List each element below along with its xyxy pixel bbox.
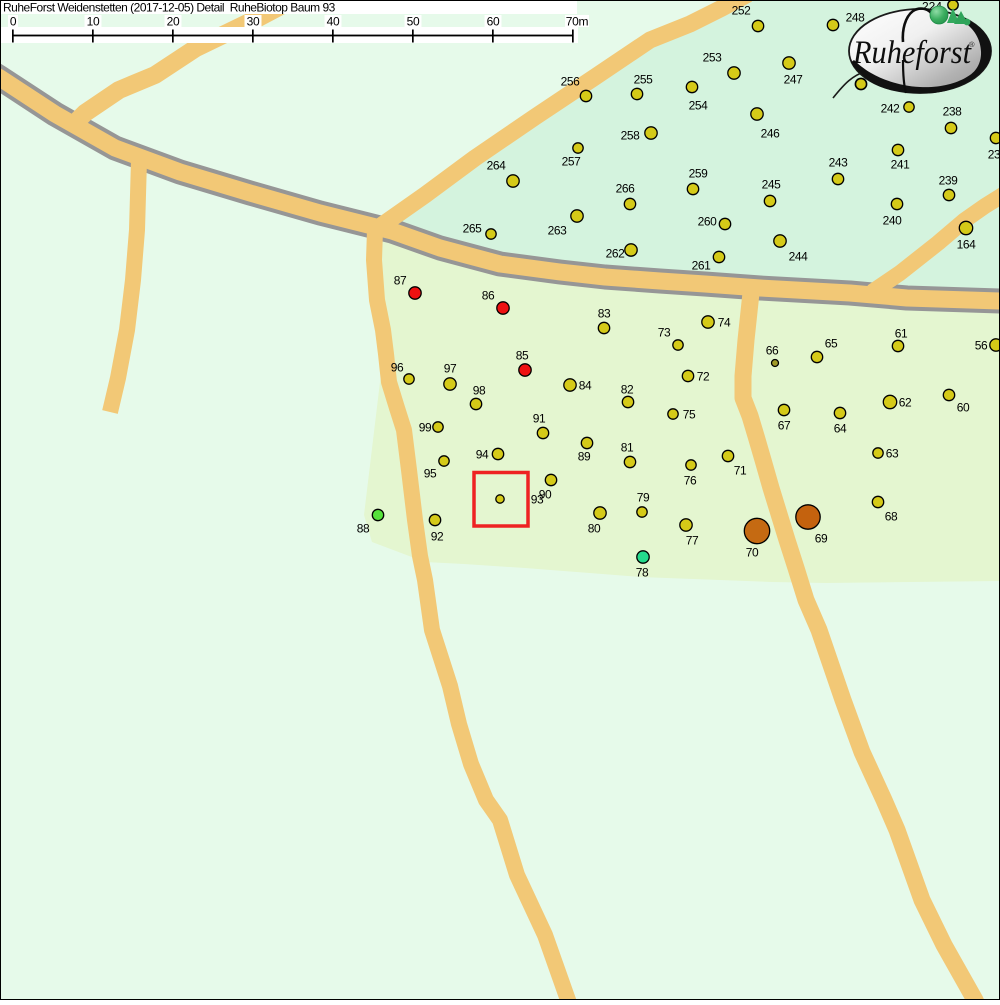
svg-text:70m: 70m [566,15,589,29]
svg-text:254: 254 [689,98,709,112]
svg-text:68: 68 [885,509,898,523]
svg-text:264: 264 [487,158,507,172]
svg-text:84: 84 [579,378,592,392]
svg-text:23: 23 [988,147,1000,161]
svg-text:61: 61 [895,326,908,340]
svg-text:265: 265 [463,221,483,235]
svg-text:72: 72 [697,369,710,383]
svg-text:50: 50 [407,15,420,29]
svg-text:252: 252 [732,3,752,17]
svg-text:78: 78 [636,565,649,579]
svg-text:69: 69 [815,531,828,545]
svg-text:87: 87 [394,273,407,287]
svg-text:81: 81 [621,440,634,454]
svg-text:91: 91 [533,411,546,425]
svg-text:256: 256 [561,74,581,88]
svg-text:80: 80 [588,521,601,535]
svg-text:RuheForst Weidenstetten (2017-: RuheForst Weidenstetten (2017-12-05) Det… [3,1,336,15]
svg-text:257: 257 [562,154,582,168]
svg-text:63: 63 [886,446,899,460]
svg-text:20: 20 [167,15,180,29]
svg-text:92: 92 [431,529,444,543]
svg-text:Ruheforst: Ruheforst [852,35,972,71]
svg-text:98: 98 [473,383,486,397]
svg-text:99: 99 [419,420,432,434]
svg-text:247: 247 [784,72,804,86]
svg-text:255: 255 [634,72,654,86]
svg-text:246: 246 [761,126,781,140]
svg-text:253: 253 [703,50,723,64]
svg-text:62: 62 [899,395,912,409]
svg-text:260: 260 [698,214,718,228]
svg-text:10: 10 [87,15,100,29]
svg-text:60: 60 [487,15,500,29]
svg-text:240: 240 [883,213,903,227]
svg-text:88: 88 [357,521,370,535]
svg-text:77: 77 [686,533,699,547]
svg-text:242: 242 [881,101,901,115]
svg-text:85: 85 [516,348,529,362]
svg-text:262: 262 [606,246,626,260]
svg-text:239: 239 [939,173,959,187]
svg-text:40: 40 [327,15,340,29]
svg-text:75: 75 [683,407,696,421]
svg-text:245: 245 [762,177,782,191]
svg-text:60: 60 [957,400,970,414]
svg-text:65: 65 [825,336,838,350]
svg-text:89: 89 [578,449,591,463]
svg-text:76: 76 [684,473,697,487]
svg-text:93: 93 [531,492,544,506]
svg-text:86: 86 [482,288,495,302]
svg-text:263: 263 [548,223,568,237]
svg-text:67: 67 [778,418,791,432]
svg-text:248: 248 [846,10,866,24]
svg-text:0: 0 [10,15,17,29]
svg-text:243: 243 [829,155,849,169]
svg-text:238: 238 [943,104,963,118]
svg-text:30: 30 [247,15,260,29]
svg-text:64: 64 [834,421,847,435]
svg-text:94: 94 [476,447,489,461]
svg-text:73: 73 [658,325,671,339]
svg-text:266: 266 [616,181,636,195]
svg-text:164: 164 [957,237,977,251]
svg-text:82: 82 [621,382,634,396]
svg-text:261: 261 [692,258,712,272]
svg-text:®: ® [969,40,975,49]
svg-text:71: 71 [734,463,747,477]
svg-text:79: 79 [637,490,650,504]
svg-text:241: 241 [891,157,911,171]
svg-text:258: 258 [621,128,641,142]
svg-text:97: 97 [444,361,457,375]
svg-text:244: 244 [789,249,809,263]
svg-text:74: 74 [718,315,731,329]
svg-text:56: 56 [975,338,988,352]
svg-text:83: 83 [598,306,611,320]
svg-text:259: 259 [689,166,709,180]
svg-text:66: 66 [766,343,779,357]
svg-text:96: 96 [391,360,404,374]
svg-text:70: 70 [746,545,759,559]
svg-text:95: 95 [424,466,437,480]
